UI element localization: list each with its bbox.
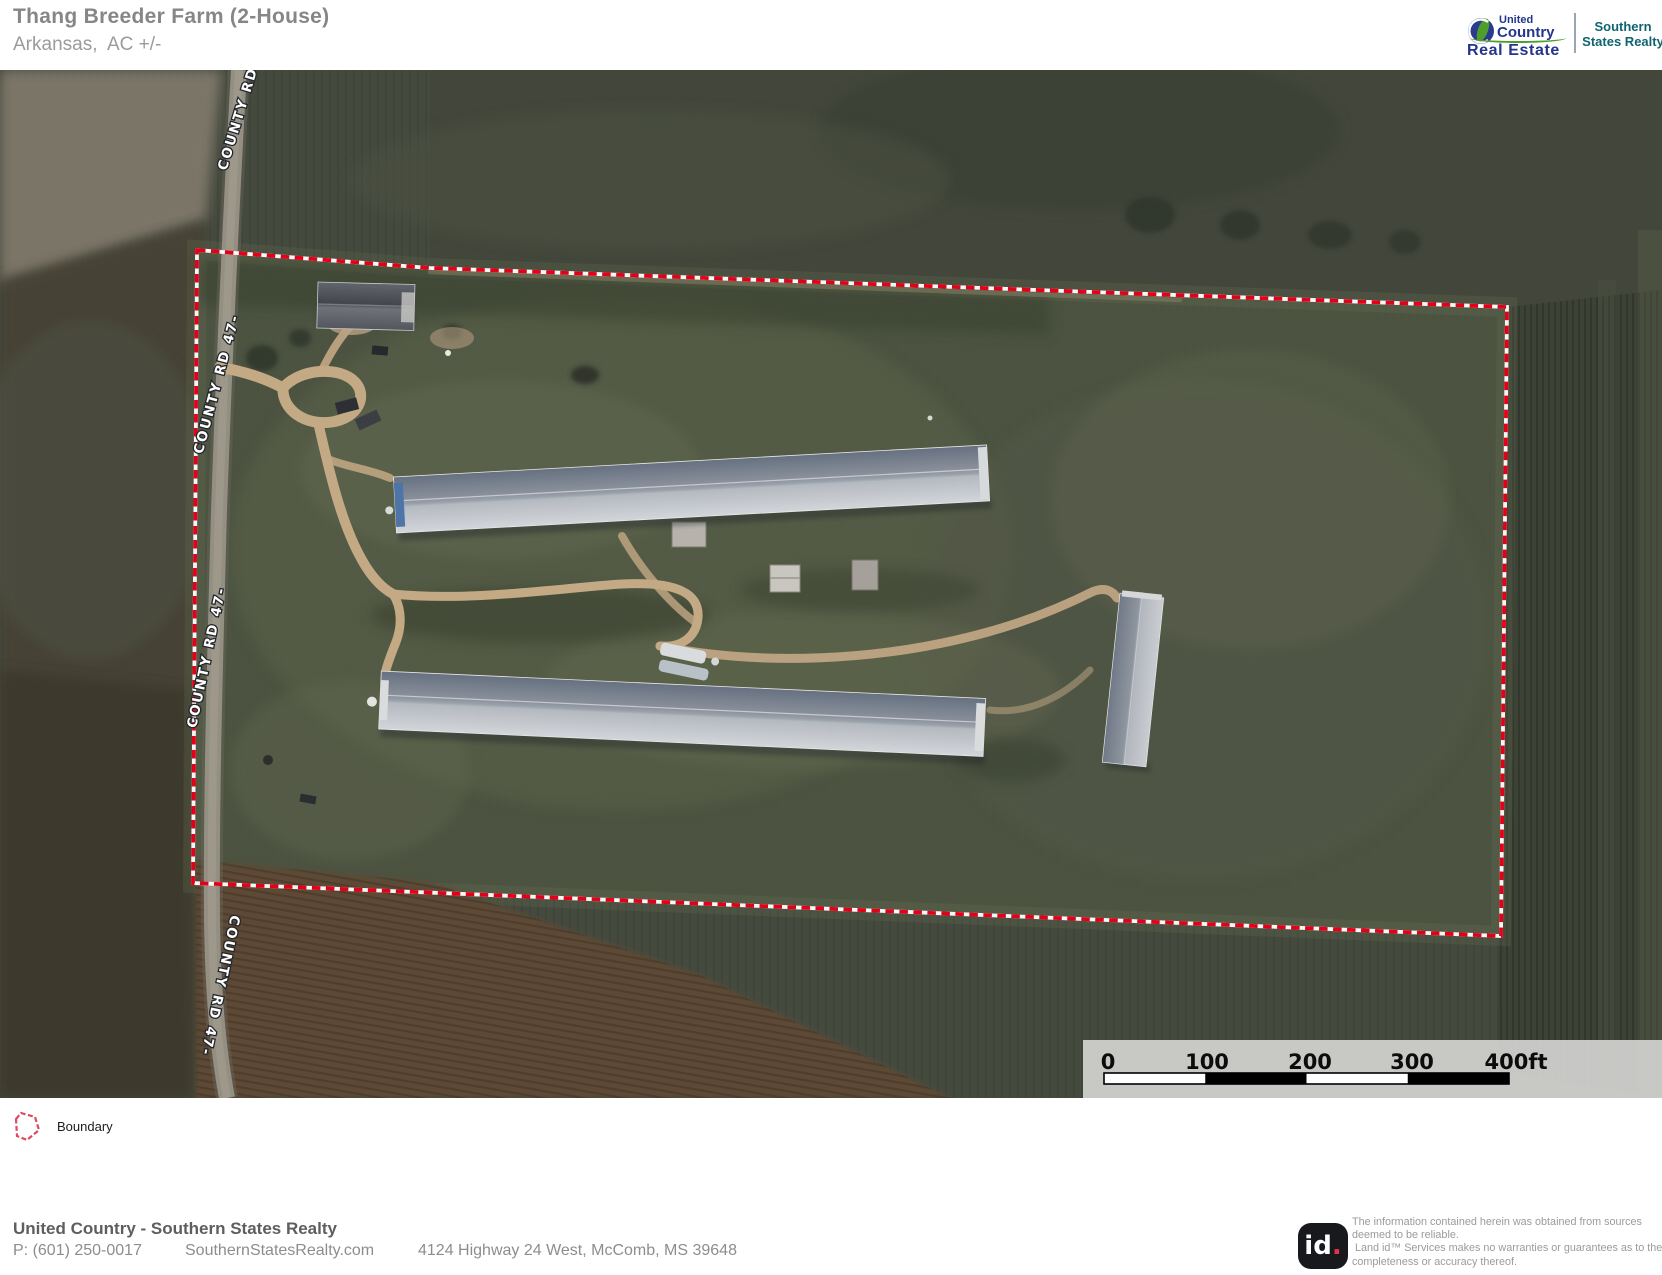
- scale-tick: 200: [1288, 1050, 1332, 1074]
- legend-boundary-label: Boundary: [57, 1119, 113, 1134]
- brand-real-estate: Real Estate: [1467, 42, 1560, 60]
- land-id-logo: id.: [1298, 1223, 1348, 1269]
- footer-website[interactable]: SouthernStatesRealty.com: [185, 1242, 374, 1260]
- aerial-photo: COUNTY RD COUNTY RD 47- COUNTY RD 47- CO…: [0, 70, 1662, 1098]
- farm-house: [317, 282, 415, 331]
- footer-company: United Country - Southern States Realty: [13, 1219, 337, 1239]
- footer-address: 4124 Highway 24 West, McComb, MS 39648: [418, 1242, 737, 1260]
- ssr-line1: Southern: [1582, 19, 1662, 34]
- disclaimer-line: Land id™ Services makes no warranties or…: [1352, 1242, 1662, 1255]
- property-map-page: Thang Breeder Farm (2-House) Arkansas, A…: [0, 0, 1662, 1275]
- disclaimer-line: The information contained herein was obt…: [1352, 1216, 1662, 1229]
- southern-states-realty-logo: Southern States Realty: [1582, 19, 1662, 49]
- scale-tick: 400ft: [1484, 1050, 1547, 1074]
- ssr-line2: States Realty: [1582, 34, 1662, 49]
- scale-tick: 100: [1185, 1050, 1229, 1074]
- brand-divider: [1574, 13, 1576, 53]
- legend: Boundary: [12, 1110, 113, 1142]
- disclaimer-line: deemed to be reliable.: [1352, 1229, 1662, 1242]
- disclaimer-line: completeness or accuracy thereof.: [1352, 1256, 1662, 1269]
- page-title: Thang Breeder Farm (2-House): [13, 5, 329, 29]
- disclaimer: The information contained herein was obt…: [1352, 1216, 1662, 1269]
- boundary-legend-icon: [12, 1110, 42, 1142]
- land-id-dot: .: [1332, 1231, 1342, 1261]
- scale-tick: 300: [1390, 1050, 1434, 1074]
- land-id-text: id: [1304, 1231, 1332, 1261]
- scale-tick: 0: [1101, 1050, 1116, 1074]
- aerial-map: COUNTY RD COUNTY RD 47- COUNTY RD 47- CO…: [0, 70, 1662, 1098]
- footer-phone: P: (601) 250-0017: [13, 1242, 142, 1260]
- page-subtitle: Arkansas, AC +/-: [13, 34, 161, 56]
- scale-bar: 0 100 200 300 400ft: [1083, 1040, 1662, 1098]
